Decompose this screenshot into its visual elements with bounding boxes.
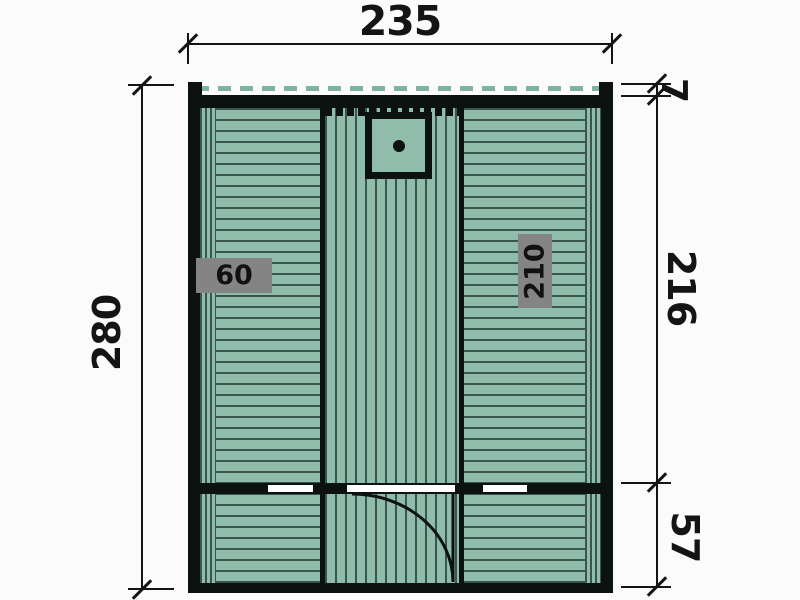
dim-line-width [188, 43, 612, 45]
left-wall [188, 95, 200, 593]
right-wall [601, 95, 613, 593]
wall-lining-strip-left [200, 108, 216, 583]
building-outline: 60 210 [188, 82, 613, 593]
extension-line [611, 33, 613, 64]
sauna-heater-icon [365, 112, 432, 179]
extension-line [128, 84, 174, 86]
extension-line [128, 588, 174, 590]
dim-line-right [656, 83, 658, 588]
window-opening [268, 485, 313, 492]
dim-overhang-label: 7 [652, 70, 694, 110]
dim-line-depth [141, 84, 143, 590]
bench-width-badge: 60 [196, 258, 272, 293]
dim-depth-label: 280 [86, 268, 128, 398]
door-opening [347, 485, 455, 492]
top-wall [188, 95, 613, 108]
roof-overhang-dashed-line-icon [196, 86, 605, 91]
bench-right [464, 108, 585, 583]
dim-width-label: 235 [330, 0, 470, 42]
dim-room-depth-label: 216 [660, 223, 702, 353]
floor-plan: 235 280 7 216 57 [0, 0, 800, 600]
extension-line [621, 482, 671, 484]
bench-length-badge: 210 [518, 234, 552, 308]
heater-center-dot [393, 140, 405, 152]
bench-left [216, 108, 320, 583]
door-swing-icon [345, 494, 457, 584]
bench-length-value: 210 [522, 243, 549, 299]
window-opening [483, 485, 527, 492]
wall-lining-strip-right [585, 108, 601, 583]
dim-front-depth-label: 57 [664, 492, 706, 582]
bottom-wall [188, 583, 613, 593]
bench-width-value: 60 [215, 262, 253, 289]
extension-line [187, 33, 189, 64]
extension-line [621, 586, 671, 588]
